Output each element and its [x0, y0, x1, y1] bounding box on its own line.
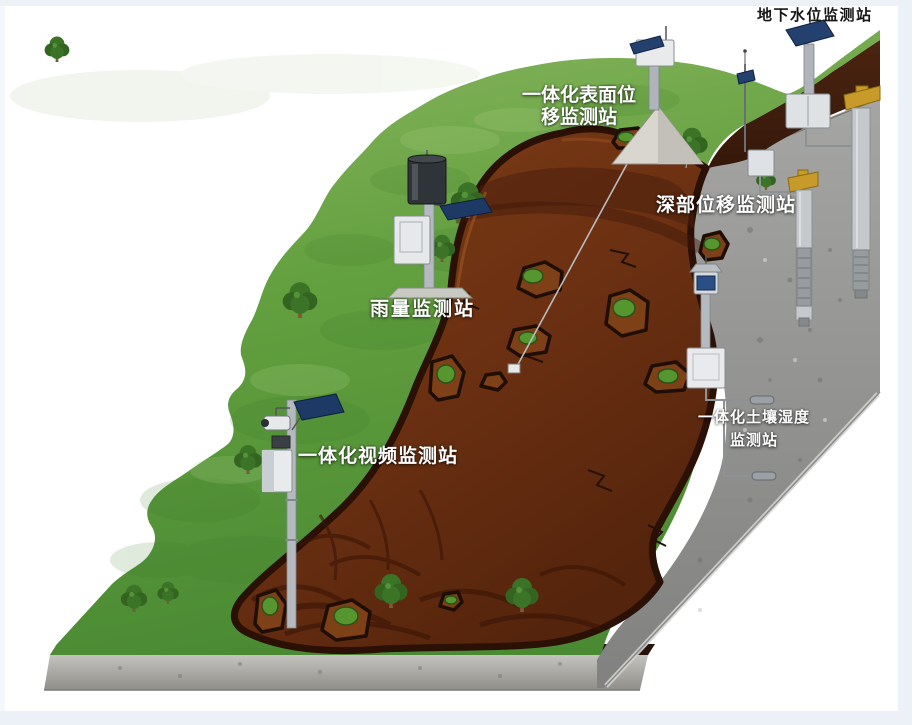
label-groundwater-station: 地下水位监测站 [757, 4, 873, 25]
frame-left [0, 0, 5, 725]
monitoring-diagram [0, 0, 912, 725]
frame-bottom [0, 711, 912, 725]
distant-hills [10, 54, 480, 122]
label-surface-displacement-station: 一体化表面位 移监测站 [503, 84, 655, 129]
frame-right [898, 0, 912, 725]
label-deep-displacement-station: 深部位移监测站 [656, 190, 796, 217]
label-rainfall-station: 雨量监测站 [370, 294, 475, 321]
monitoring-diagram-stage: 地下水位监测站 一体化表面位 移监测站 深部位移监测站 雨量监测站 一体化视频监… [0, 0, 912, 725]
label-video-station: 一体化视频监测站 [298, 441, 458, 468]
label-soil-moisture-station: 一体化土壤湿度 监测站 [688, 406, 820, 451]
